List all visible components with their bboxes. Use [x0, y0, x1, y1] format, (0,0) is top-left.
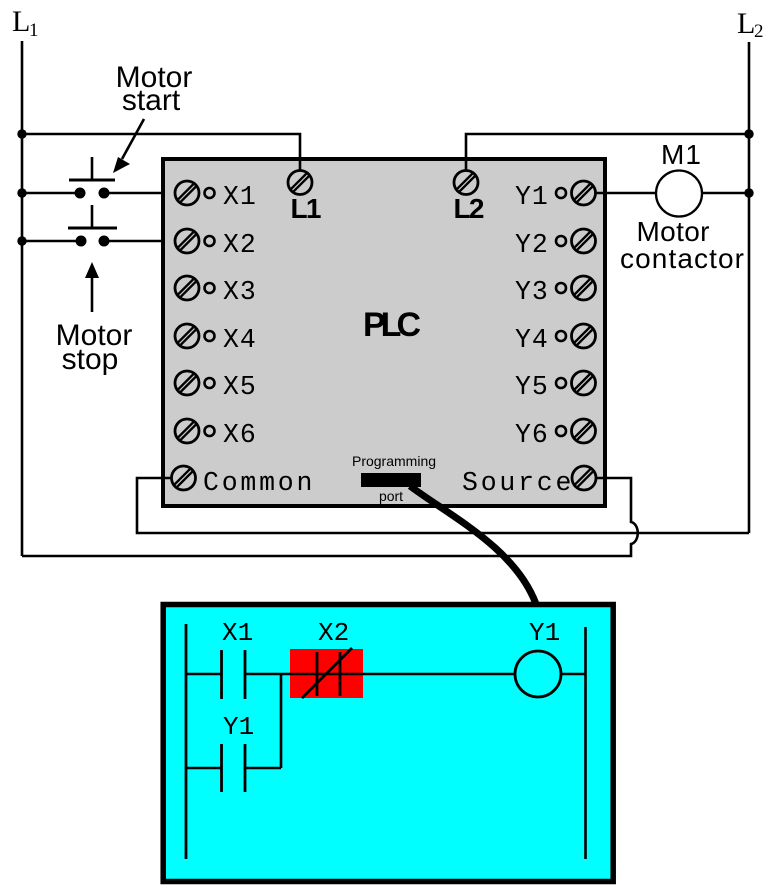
svg-text:port: port — [379, 488, 403, 504]
svg-text:Programming: Programming — [352, 453, 436, 469]
svg-text:X1: X1 — [223, 182, 257, 212]
svg-text:Y3: Y3 — [515, 277, 549, 307]
svg-text:L: L — [737, 7, 755, 40]
svg-text:start: start — [122, 84, 181, 117]
svg-text:Y4: Y4 — [515, 325, 549, 355]
svg-text:X2: X2 — [223, 230, 257, 260]
svg-text:stop: stop — [62, 343, 119, 376]
svg-text:M1: M1 — [661, 139, 701, 170]
svg-text:Y1: Y1 — [223, 712, 254, 742]
svg-text:X3: X3 — [223, 277, 257, 307]
svg-text:contactor: contactor — [620, 243, 744, 274]
svg-text:L2: L2 — [454, 193, 485, 224]
svg-text:X1: X1 — [222, 618, 253, 648]
svg-text:X4: X4 — [223, 325, 257, 355]
svg-text:1: 1 — [29, 20, 39, 41]
svg-text:L1: L1 — [291, 193, 322, 224]
svg-text:2: 2 — [754, 21, 764, 42]
svg-text:X6: X6 — [223, 420, 257, 450]
svg-text:L: L — [12, 5, 30, 38]
svg-text:Source: Source — [462, 468, 574, 498]
svg-text:Y5: Y5 — [515, 372, 549, 402]
svg-text:X5: X5 — [223, 372, 257, 402]
svg-text:Common: Common — [203, 468, 315, 498]
svg-text:Y1: Y1 — [515, 182, 549, 212]
svg-text:Y6: Y6 — [515, 420, 549, 450]
svg-text:Y2: Y2 — [515, 230, 549, 260]
svg-text:X2: X2 — [318, 618, 349, 648]
svg-text:Y1: Y1 — [529, 618, 560, 648]
svg-text:PLC: PLC — [363, 306, 421, 344]
